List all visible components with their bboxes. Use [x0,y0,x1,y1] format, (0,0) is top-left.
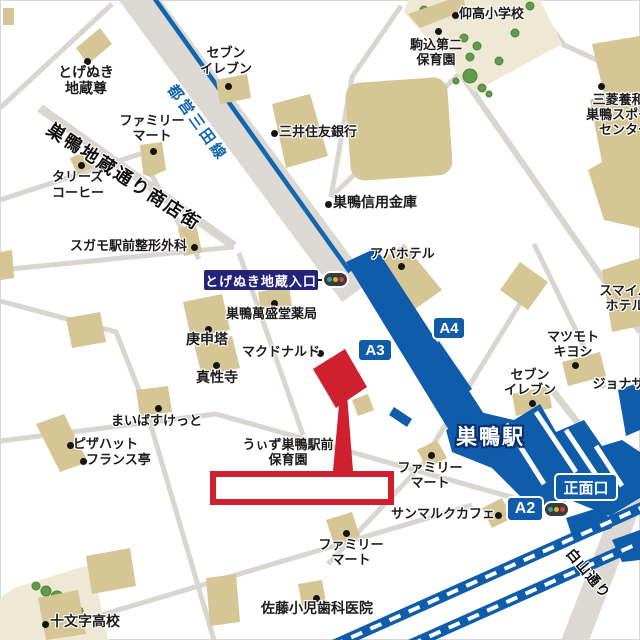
poi-dot [42,621,49,628]
label-sugamo-station: 巣鴨駅 [456,421,525,451]
label-family-mart-center: ファミリー マート [390,460,470,490]
badge-main-entrance: 正面口 [556,475,616,499]
label-san-marc-cafe: サンマルクカフェ [391,506,495,521]
label-apa-hotel: アパホテル [370,246,435,261]
traffic-signal-icon [543,501,570,518]
badge-togenuki-jizo-entrance: とげぬき地蔵入口 [204,270,318,290]
label-jonathan: ジョナサン [545,376,640,391]
label-sugamo-ekimae-seikei-clinic: スガモ駅前整形外科 [70,238,187,253]
label-sugamo-shinkin-bank: 巣鴨信用金庫 [333,195,417,210]
signal-yellow-light [554,507,559,512]
poi-dot [191,244,198,251]
poi-dot [452,12,459,19]
label-tullys-coffee: タリーズ コーヒー [52,169,104,201]
poi-dot [495,512,502,519]
highlight-callout-box [213,474,391,502]
poi-dot [435,28,442,35]
label-jumonji-high-school: 十文字高校 [50,614,120,629]
poi-dot [225,83,232,90]
poi-dot [343,530,350,537]
label-gyoko-elementary-school: 仰高小学校 [459,6,524,21]
label-france-tei: フランス亭 [86,452,151,467]
label-komagome-daini-nursery: 駒込第二 保育園 [396,37,476,67]
label-sato-pediatric-dental-clinic: 佐藤小児歯科医院 [261,601,373,616]
label-pizza-hut: ピザハット [73,436,138,451]
poi-dot [598,83,605,90]
label-seven-eleven-north: セブン イレブン [186,45,266,77]
label-shinshoji-temple: 真性寺 [196,370,238,385]
poi-dot [428,452,435,459]
label-koshinto: 庚申塔 [186,332,228,347]
poi-dot [78,162,85,169]
label-family-mart-north: ファミリー マート [112,113,192,143]
label-mitsubishi-yowa-sports-center: 三菱養和会 巣鴨スポーツ センター [545,92,640,137]
signal-red-light [339,277,344,282]
label-sugamo-manseido-pharmacy: 巣鴨萬盛堂薬局 [226,306,317,321]
sugamo-area-map: 巣鴨地蔵通り商店街 都営三田線 白山通り 仰高小学校 駒込第二 保育園 三菱養和… [0,0,640,640]
poi-dot [213,362,220,369]
label-matsumoto-kiyoshi: マツモト キヨシ [533,329,613,359]
badge-exit-a2: A2 [508,498,542,520]
signal-red-light [560,507,565,512]
poi-dot [155,405,162,412]
poi-dot [150,148,157,155]
label-family-mart-south: ファミリー マート [311,537,391,567]
badge-exit-a4: A4 [434,318,464,338]
label-smile-hotel: スマイル ホテル [545,283,640,313]
badge-exit-a3: A3 [359,340,391,360]
signal-green-light [548,507,553,512]
poi-dot [572,362,579,369]
poi-dot [325,201,332,208]
label-mitsui-sumitomo-bank: 三井住友銀行 [279,124,357,139]
signal-yellow-light [333,277,338,282]
label-togenuki-jizoson: とげぬき 地蔵尊 [46,64,126,96]
label-with-sugamo-ekimae-nursery: うぃず巣鴨駅前 保育園 [228,437,348,467]
traffic-signal-icon [322,271,349,288]
poi-dot [271,130,278,137]
poi-dot [398,263,405,270]
label-mcdonalds: マクドナルド [242,344,320,359]
label-maibasuketto: まいばすけっと [111,413,202,428]
poi-dot [529,400,536,407]
signal-green-light [327,277,332,282]
